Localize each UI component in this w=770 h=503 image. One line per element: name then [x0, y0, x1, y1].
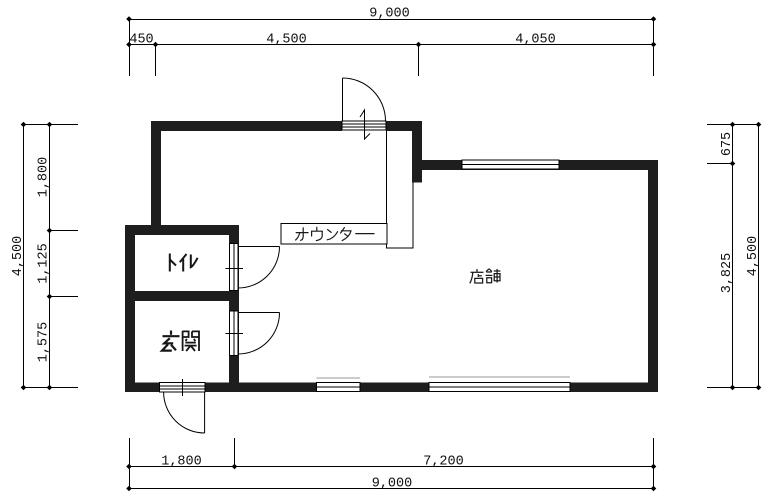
svg-text:7,200: 7,200: [423, 454, 464, 469]
svg-text:4,500: 4,500: [11, 236, 26, 277]
svg-text:4,500: 4,500: [266, 33, 307, 48]
svg-text:9,000: 9,000: [369, 7, 410, 22]
svg-text:4,050: 4,050: [515, 33, 556, 48]
svg-text:4,500: 4,500: [746, 236, 761, 277]
svg-text:1,800: 1,800: [161, 454, 202, 469]
svg-text:1,125: 1,125: [37, 243, 52, 284]
svg-text:1,575: 1,575: [37, 322, 52, 363]
svg-text:3,825: 3,825: [720, 253, 735, 294]
svg-text:675: 675: [720, 132, 735, 156]
svg-text:1,800: 1,800: [37, 157, 52, 198]
svg-text:450: 450: [129, 33, 153, 48]
svg-text:9,000: 9,000: [372, 476, 413, 491]
